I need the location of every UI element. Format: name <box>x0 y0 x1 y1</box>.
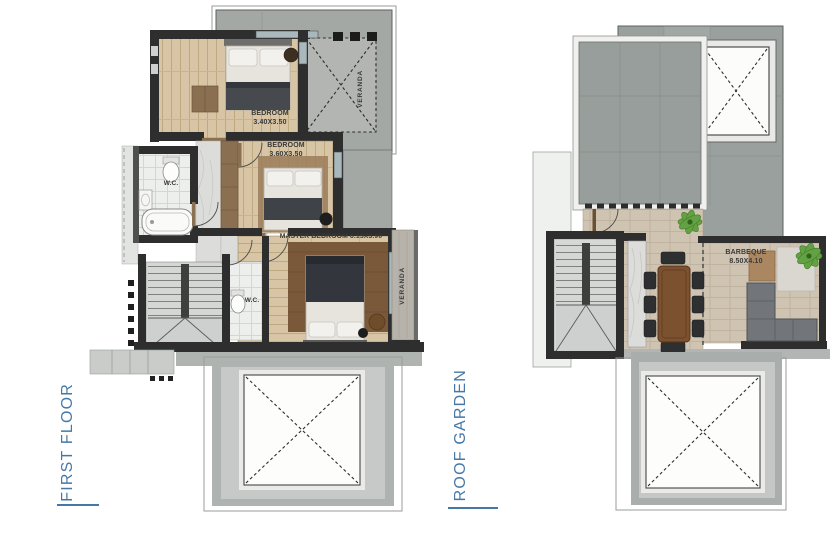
roof-garden-title: ROOF GARDEN <box>447 371 475 499</box>
room-label-wc-master: W.C. <box>239 297 265 304</box>
room-name: BEDROOM <box>248 141 324 150</box>
roof-slabs <box>573 26 783 240</box>
terrace-side-area <box>343 150 392 236</box>
side-table <box>320 213 333 226</box>
sink <box>139 190 152 210</box>
bed <box>264 168 322 230</box>
roof-vent-squares <box>333 32 377 41</box>
room-name: BARBEQUE <box>707 248 785 257</box>
roof-garden-plan <box>533 26 830 510</box>
first-floor-title: FIRST FLOOR <box>54 381 82 503</box>
room-label-bedroom-2: BEDROOM 3.60X3.50 <box>248 141 324 159</box>
room-label-barbeque: BARBEQUE 8.50X4.10 <box>707 248 785 266</box>
bed <box>224 38 292 110</box>
toilet <box>163 162 179 182</box>
room-label-wc-main: W.C. <box>158 180 184 187</box>
room-label-bedroom-1: BEDROOM 3.40X3.50 <box>232 109 308 127</box>
staircase <box>128 254 230 350</box>
bed <box>303 256 367 345</box>
lower-void <box>616 352 786 510</box>
floor-plan-drawing <box>0 0 835 543</box>
room-label-veranda-side: VERANDA <box>395 260 409 312</box>
void-skylight <box>696 40 776 142</box>
room-dims: 3.60X3.50 <box>248 150 324 159</box>
lower-void <box>204 357 402 511</box>
staircase <box>546 231 624 359</box>
first-floor-title-underline <box>57 504 99 506</box>
roof-garden-title-underline <box>448 507 498 509</box>
room-dims: 8.50X4.10 <box>707 257 785 266</box>
room-name: BEDROOM <box>232 109 308 118</box>
room-dims: 3.40X3.50 <box>232 118 308 127</box>
room-label-master-bedroom: MASTER BEDROOM 6.15X3.90 <box>266 233 396 242</box>
first-floor-plan <box>90 6 424 511</box>
entrance-steps <box>90 350 174 374</box>
side-table <box>284 48 298 62</box>
side-table <box>369 314 385 330</box>
bathtub <box>142 209 193 235</box>
stool <box>358 328 368 338</box>
floor-plan-sheet: BEDROOM 3.40X3.50 BEDROOM 3.60X3.50 MAST… <box>0 0 835 543</box>
railing-ticks <box>128 280 134 346</box>
marble-strip <box>628 241 646 347</box>
room-label-veranda-top: VERANDA <box>352 62 368 116</box>
dining-table <box>658 266 690 342</box>
